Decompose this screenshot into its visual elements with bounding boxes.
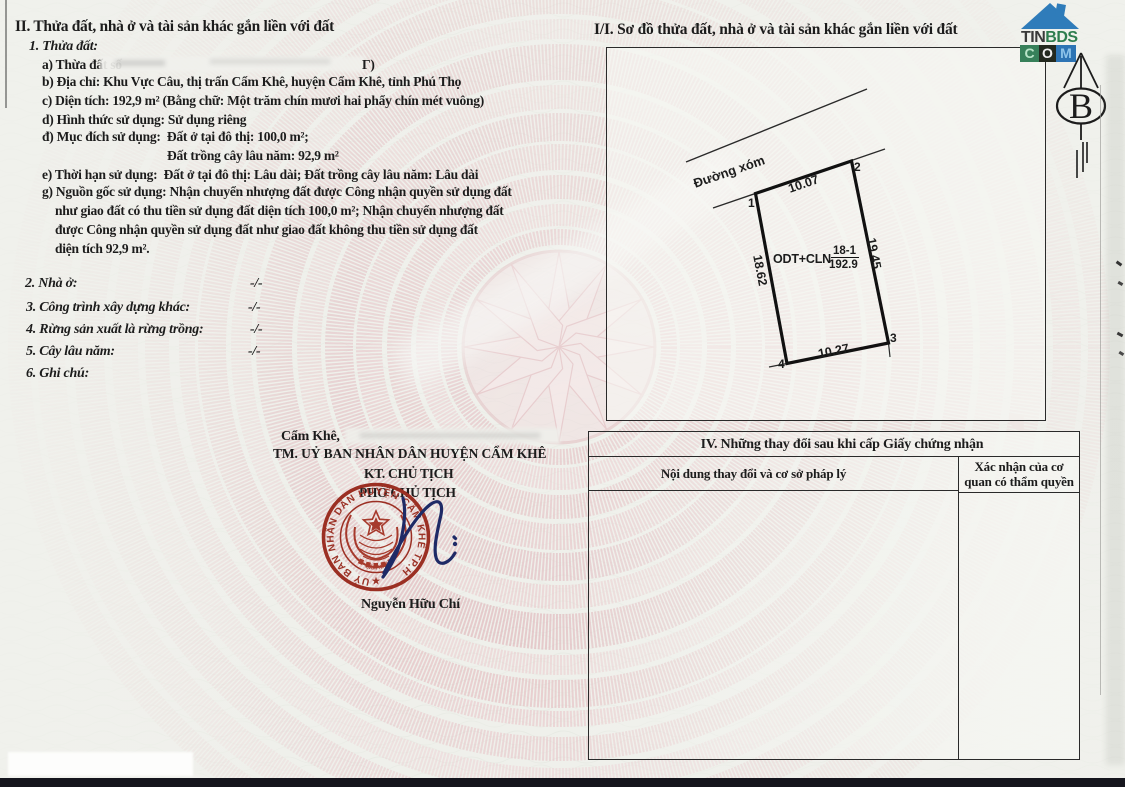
svg-text:B: B: [1069, 86, 1093, 126]
